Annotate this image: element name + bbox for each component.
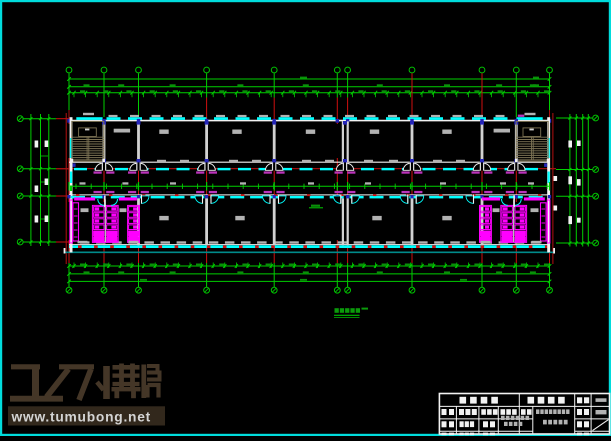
svg-text:www.tumubong.net: www.tumubong.net — [11, 410, 151, 425]
